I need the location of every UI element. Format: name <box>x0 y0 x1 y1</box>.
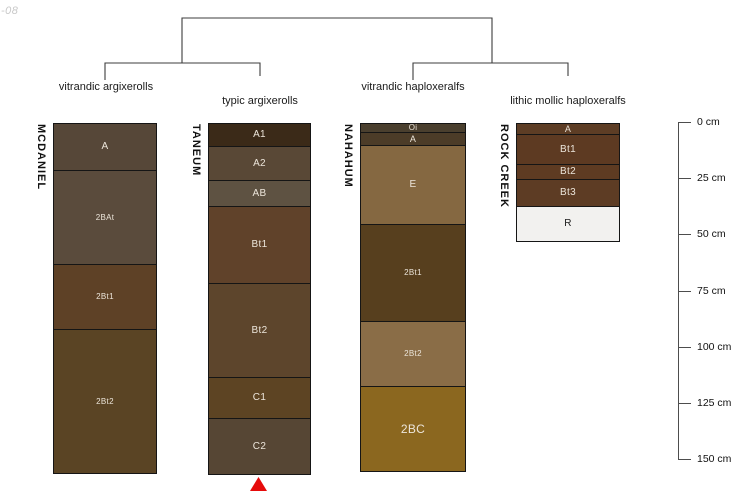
depth-axis-tick <box>678 234 691 235</box>
depth-axis-label: 125 cm <box>697 397 731 409</box>
horizon-label: Bt1 <box>252 240 268 250</box>
horizon-label: Bt2 <box>252 326 268 336</box>
horizon-taneum-AB: AB <box>209 180 310 206</box>
horizon-label: R <box>564 219 572 229</box>
horizon-label: Bt3 <box>560 188 576 198</box>
horizon-nahahum-2Bt2: 2Bt2 <box>361 321 465 386</box>
red-triangle-marker <box>250 477 267 491</box>
horizon-label: A <box>102 142 109 152</box>
depth-axis-label: 75 cm <box>697 285 726 297</box>
horizon-label: Bt2 <box>560 167 576 177</box>
horizon-rock-creek-Bt1: Bt1 <box>517 134 619 164</box>
horizon-label: E <box>410 180 417 190</box>
taxon-label-typic-argixerolls: typic argixerolls <box>222 95 298 107</box>
horizon-nahahum-E: E <box>361 145 465 224</box>
horizon-taneum-C1: C1 <box>209 377 310 418</box>
profile-column-taneum: A1A2ABBt1Bt2C1C2 <box>208 123 311 475</box>
horizon-taneum-C2: C2 <box>209 418 310 474</box>
series-label-mcdaniel: MCDANIEL <box>35 124 47 190</box>
depth-axis-tick <box>678 459 691 460</box>
depth-axis-tick <box>678 291 691 292</box>
depth-axis-label: 50 cm <box>697 228 726 240</box>
horizon-label: A1 <box>253 130 266 140</box>
depth-axis-label: 0 cm <box>697 116 720 128</box>
taxon-label-vitrandic-haploxeralfs: vitrandic haploxeralfs <box>361 81 464 93</box>
profile-column-nahahum: OiAE2Bt12Bt22BC <box>360 123 466 472</box>
series-label-nahahum: NAHAHUM <box>342 124 354 188</box>
horizon-label: AB <box>253 189 267 199</box>
horizon-taneum-Bt1: Bt1 <box>209 206 310 283</box>
depth-axis-tick <box>678 403 691 404</box>
taxon-label-vitrandic-argixerolls: vitrandic argixerolls <box>59 81 153 93</box>
series-label-rock-creek: ROCK CREEK <box>498 124 510 208</box>
horizon-label: 2BAt <box>96 214 115 222</box>
horizon-nahahum-Oi: Oi <box>361 124 465 132</box>
horizon-label: Bt1 <box>560 145 576 155</box>
horizon-label: C2 <box>253 442 266 452</box>
horizon-nahahum-2Bt1: 2Bt1 <box>361 224 465 321</box>
series-label-taneum: TANEUM <box>190 124 202 176</box>
taxon-label-lithic-mollic-haploxeralfs: lithic mollic haploxeralfs <box>510 95 626 107</box>
depth-axis-label: 100 cm <box>697 341 731 353</box>
horizon-label: 2Bt1 <box>96 293 114 301</box>
profile-column-mcdaniel: A2BAt2Bt12Bt2 <box>53 123 157 474</box>
profile-column-rock-creek: ABt1Bt2Bt3R <box>516 123 620 242</box>
horizon-label: A <box>410 135 416 144</box>
horizon-rock-creek-Bt2: Bt2 <box>517 164 619 179</box>
depth-axis-tick <box>678 347 691 348</box>
horizon-mcdaniel-2Bt1: 2Bt1 <box>54 264 156 329</box>
horizon-label: 2BC <box>401 423 425 435</box>
horizon-label: A <box>565 125 571 134</box>
depth-axis-label: 150 cm <box>697 453 731 465</box>
horizon-label: Oi <box>409 124 418 132</box>
horizon-rock-creek-A: A <box>517 124 619 134</box>
horizon-label: A2 <box>253 159 266 169</box>
horizon-mcdaniel-A: A <box>54 124 156 170</box>
horizon-mcdaniel-2Bt2: 2Bt2 <box>54 329 156 473</box>
soil-profile-figure: -08 vitrandic argixerollstypic argixerol… <box>0 0 750 500</box>
horizon-label: 2Bt1 <box>404 269 422 277</box>
horizon-taneum-A1: A1 <box>209 124 310 146</box>
horizon-nahahum-A: A <box>361 132 465 145</box>
horizon-taneum-A2: A2 <box>209 146 310 180</box>
dendrogram-lines <box>0 0 750 120</box>
horizon-nahahum-2BC: 2BC <box>361 386 465 471</box>
horizon-mcdaniel-2BAt: 2BAt <box>54 170 156 264</box>
horizon-label: C1 <box>253 393 266 403</box>
depth-axis-label: 25 cm <box>697 172 726 184</box>
horizon-rock-creek-R: R <box>517 206 619 241</box>
depth-axis-tick <box>678 122 691 123</box>
horizon-label: 2Bt2 <box>96 398 114 406</box>
horizon-rock-creek-Bt3: Bt3 <box>517 179 619 206</box>
horizon-label: 2Bt2 <box>404 350 422 358</box>
horizon-taneum-Bt2: Bt2 <box>209 283 310 377</box>
depth-axis-tick <box>678 178 691 179</box>
